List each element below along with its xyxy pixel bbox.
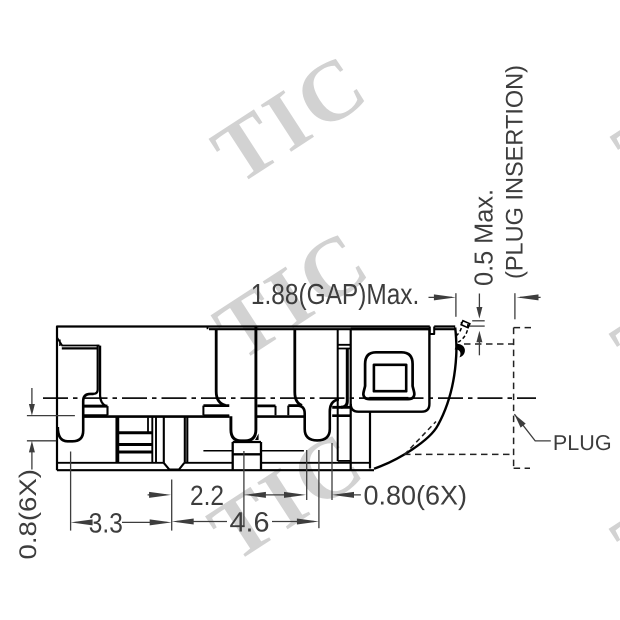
svg-text:0.80(6X): 0.80(6X) xyxy=(364,481,468,511)
svg-text:0.8(6X): 0.8(6X) xyxy=(15,469,42,560)
svg-text:2.2: 2.2 xyxy=(190,480,224,511)
svg-text:4.6: 4.6 xyxy=(230,506,270,537)
svg-text:3.3: 3.3 xyxy=(89,507,123,538)
svg-text:(PLUG INSERTION): (PLUG INSERTION) xyxy=(502,65,529,279)
svg-text:PLUG: PLUG xyxy=(553,431,612,455)
svg-text:0.5 Max.: 0.5 Max. xyxy=(469,189,499,286)
svg-text:1.88(GAP)Max.: 1.88(GAP)Max. xyxy=(251,279,419,311)
